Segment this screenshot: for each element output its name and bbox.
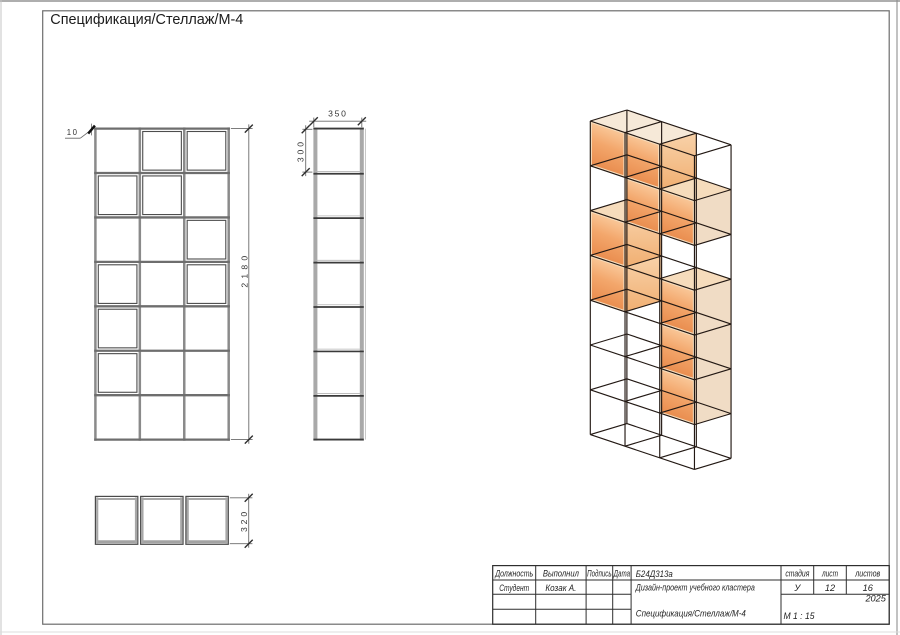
svg-text:Дизайн-проект учебного кластер: Дизайн-проект учебного кластера	[635, 582, 755, 592]
svg-text:Б24Д313а: Б24Д313а	[636, 569, 673, 579]
svg-text:Подпись: Подпись	[587, 569, 612, 579]
svg-text:320: 320	[239, 509, 249, 532]
svg-text:стадия: стадия	[785, 569, 809, 579]
svg-text:У: У	[793, 583, 801, 593]
svg-text:350: 350	[328, 109, 347, 119]
svg-text:2180: 2180	[239, 252, 249, 288]
svg-text:листов: листов	[854, 569, 880, 579]
svg-text:М 1 : 15: М 1 : 15	[784, 611, 816, 621]
svg-text:Козак А.: Козак А.	[545, 583, 576, 593]
svg-text:Спецификация/Стеллаж/М-4: Спецификация/Стеллаж/М-4	[636, 608, 746, 618]
svg-text:Дата: Дата	[613, 569, 630, 579]
svg-text:Должность: Должность	[494, 569, 533, 579]
svg-text:2025: 2025	[864, 594, 886, 604]
svg-text:лист: лист	[821, 569, 838, 579]
svg-text:Студент: Студент	[499, 583, 529, 593]
svg-text:16: 16	[863, 583, 874, 593]
svg-text:Выполнил: Выполнил	[543, 569, 579, 579]
svg-text:12: 12	[825, 583, 835, 593]
svg-text:300: 300	[295, 139, 305, 162]
svg-text:Спецификация/Стеллаж/М-4: Спецификация/Стеллаж/М-4	[50, 11, 243, 28]
svg-text:10: 10	[67, 128, 79, 137]
